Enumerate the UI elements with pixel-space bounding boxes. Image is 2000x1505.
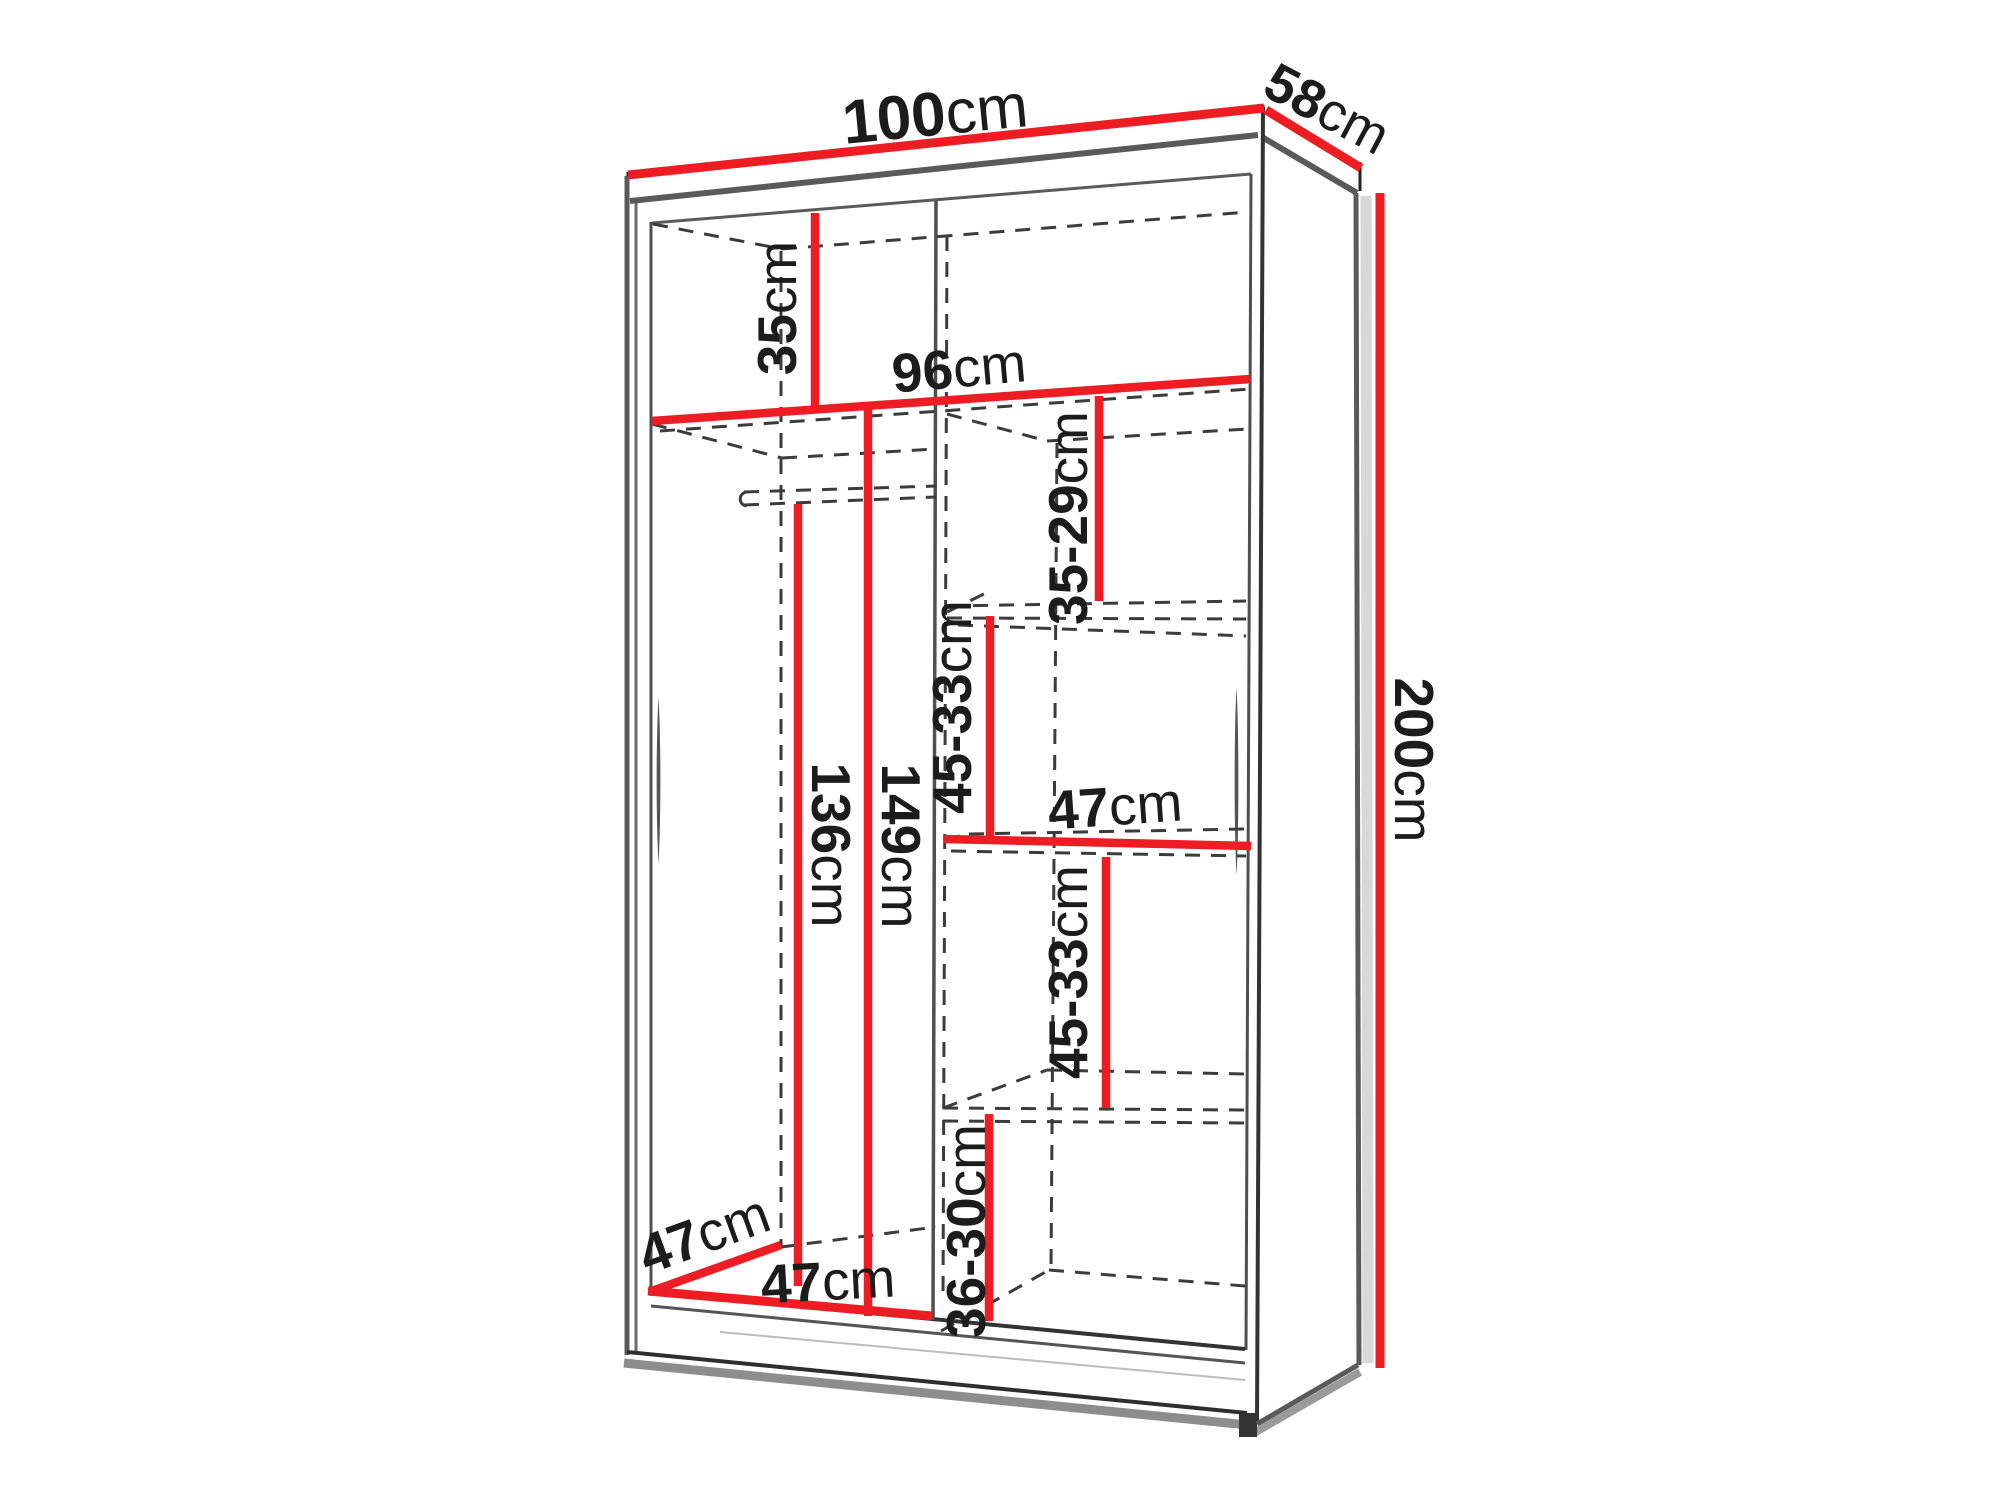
svg-text:200cm: 200cm	[1383, 677, 1445, 842]
svg-text:35-29cm: 35-29cm	[1037, 411, 1099, 625]
svg-text:47cm: 47cm	[759, 1247, 897, 1316]
svg-text:45-33cm: 45-33cm	[1037, 865, 1099, 1079]
svg-text:149cm: 149cm	[870, 763, 932, 928]
svg-text:36-30cm: 36-30cm	[935, 1124, 997, 1338]
svg-text:96cm: 96cm	[889, 331, 1028, 404]
svg-text:47cm: 47cm	[1046, 770, 1185, 841]
svg-text:35cm: 35cm	[746, 241, 808, 376]
svg-text:136cm: 136cm	[800, 762, 862, 927]
